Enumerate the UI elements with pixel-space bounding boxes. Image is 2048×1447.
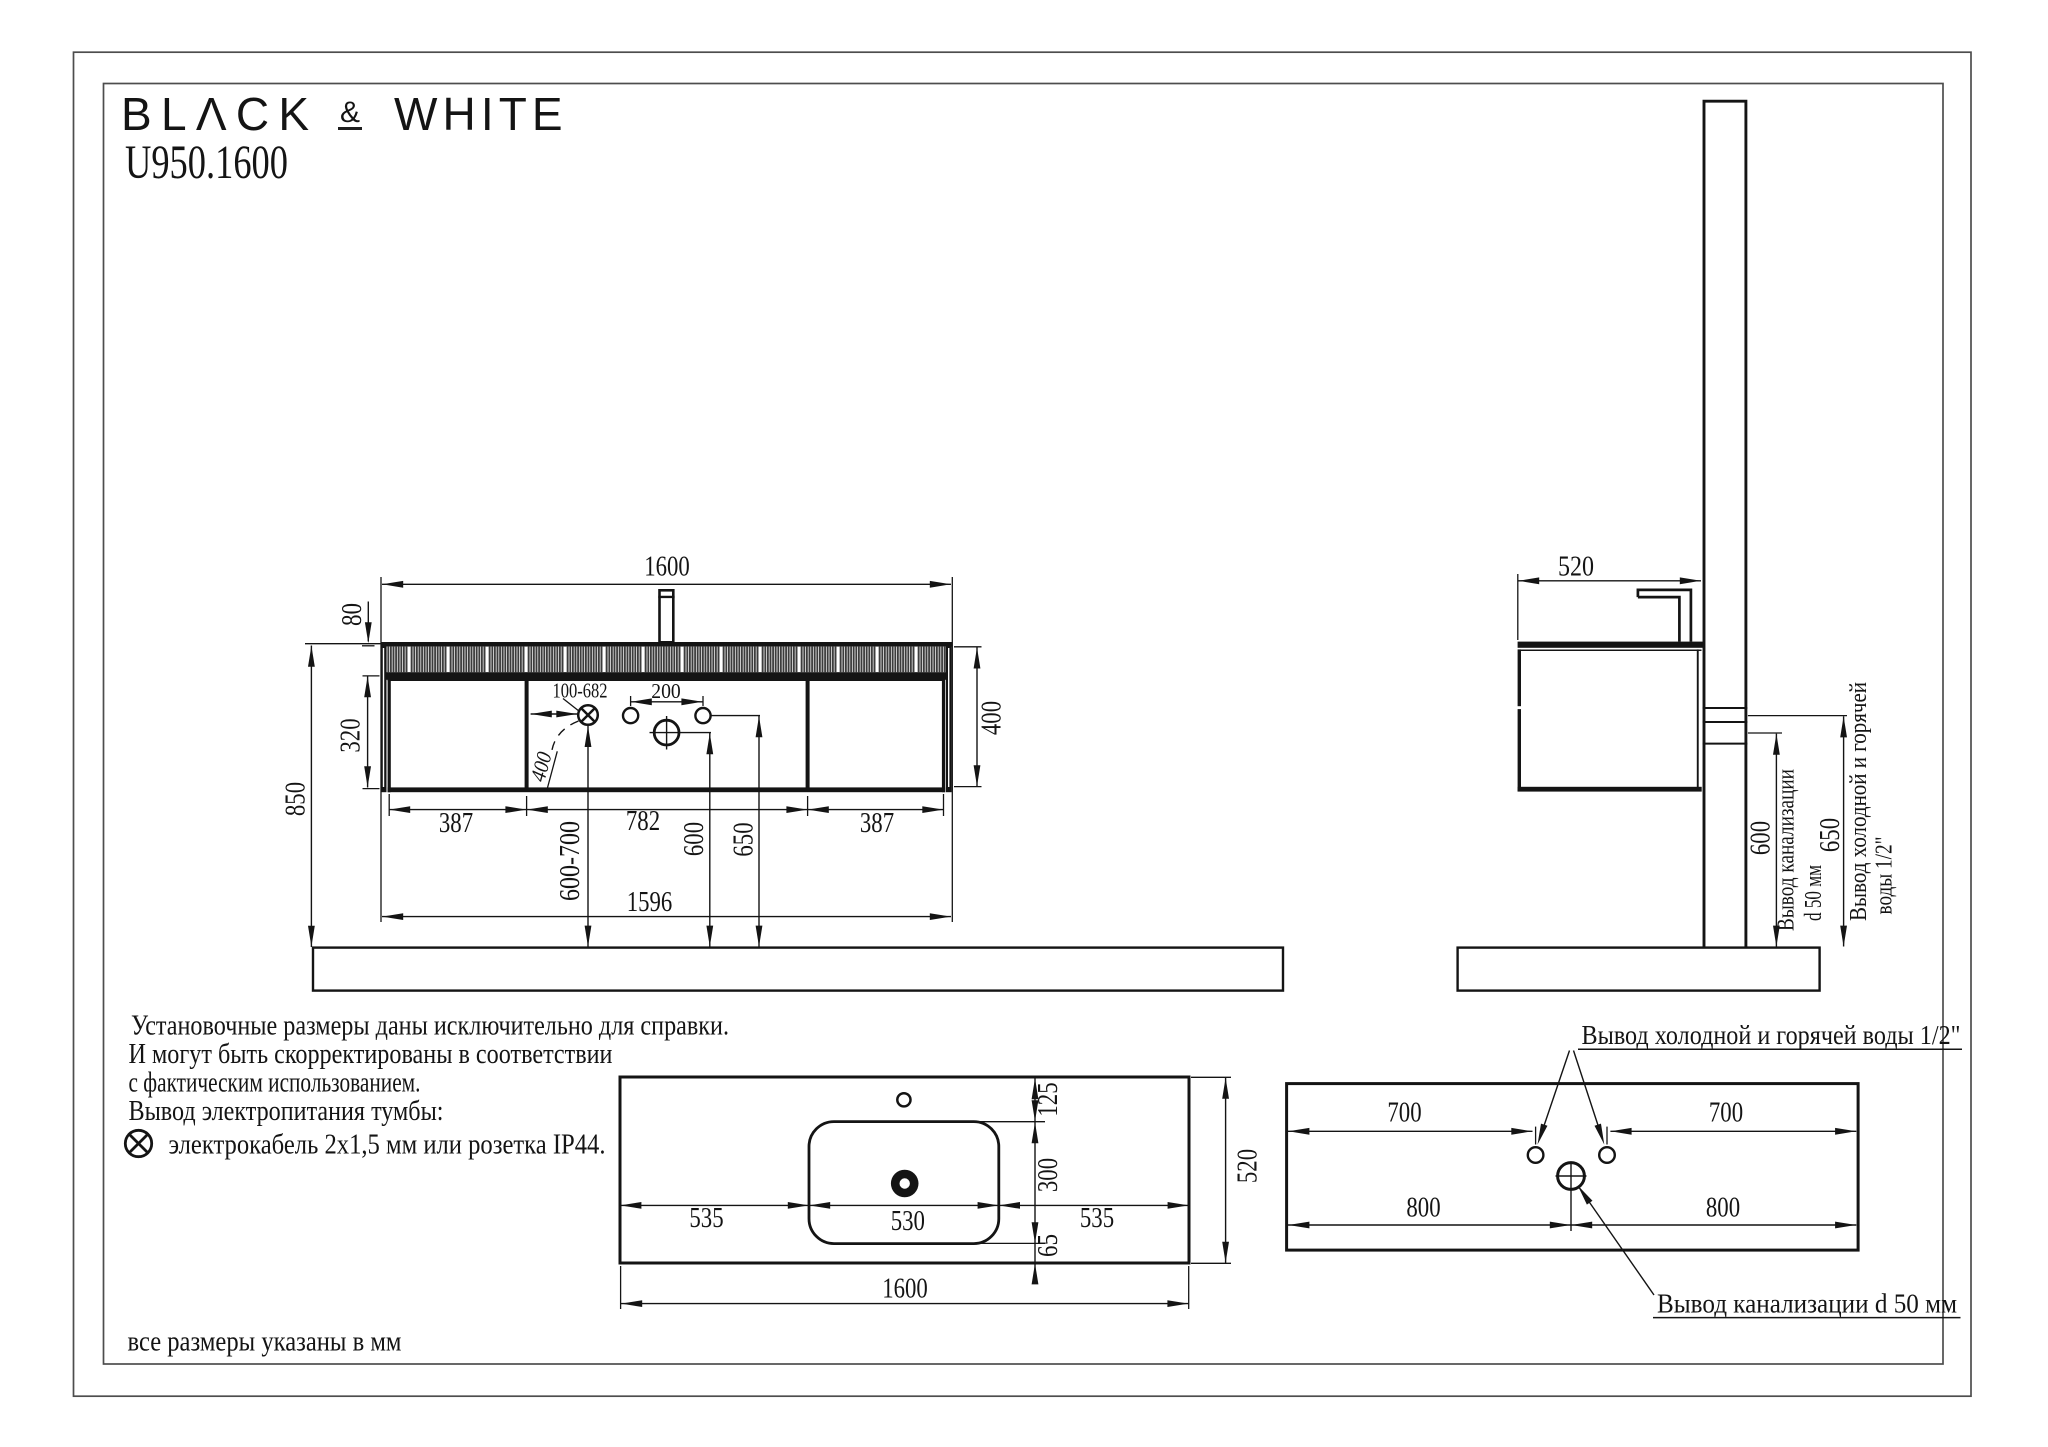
svg-text:65: 65: [1032, 1234, 1064, 1257]
svg-text:535: 535: [689, 1202, 723, 1234]
svg-text:700: 700: [1709, 1097, 1743, 1129]
svg-text:И могут быть скорректированы в: И могут быть скорректированы в соответст…: [129, 1038, 613, 1070]
svg-text:Установочные размеры даны искл: Установочные размеры даны исключительно …: [131, 1010, 729, 1042]
svg-text:600: 600: [1744, 821, 1776, 855]
svg-text:Вывод канализации d 50 мм: Вывод канализации d 50 мм: [1657, 1289, 1957, 1319]
svg-text:1600: 1600: [644, 551, 690, 583]
svg-text:BLΛCK: BLΛCK: [121, 88, 318, 140]
svg-text:1596: 1596: [627, 886, 673, 918]
svg-text:100-682: 100-682: [553, 679, 608, 703]
svg-text:800: 800: [1706, 1192, 1740, 1224]
svg-text:все размеры указаны в мм: все размеры указаны в мм: [128, 1326, 402, 1358]
svg-text:U950.1600: U950.1600: [125, 136, 288, 189]
svg-text:125: 125: [1032, 1082, 1064, 1116]
svg-text:с фактическим использованием.: с фактическим использованием.: [129, 1067, 421, 1099]
svg-text:WHITE: WHITE: [394, 88, 568, 140]
svg-text:320: 320: [335, 718, 367, 752]
svg-text:Вывод холодной и горячей: Вывод холодной и горячей: [1846, 682, 1872, 921]
svg-text:&: &: [340, 96, 360, 129]
svg-text:387: 387: [439, 807, 473, 839]
svg-text:387: 387: [860, 807, 894, 839]
svg-text:электрокабель 2х1,5 мм или роз: электрокабель 2х1,5 мм или розетка IP44.: [169, 1129, 606, 1161]
svg-text:700: 700: [1387, 1097, 1421, 1129]
svg-text:80: 80: [336, 603, 368, 626]
svg-text:650: 650: [728, 822, 760, 856]
svg-text:200: 200: [651, 679, 681, 703]
svg-text:782: 782: [626, 805, 660, 837]
svg-text:300: 300: [1032, 1158, 1064, 1192]
svg-text:520: 520: [1232, 1149, 1264, 1183]
svg-text:650: 650: [1814, 818, 1846, 852]
svg-text:Вывод канализации: Вывод канализации: [1774, 769, 1800, 931]
svg-text:600-700: 600-700: [554, 821, 586, 901]
svg-text:800: 800: [1406, 1192, 1440, 1224]
svg-text:520: 520: [1558, 550, 1594, 582]
svg-text:600: 600: [678, 822, 710, 856]
svg-text:535: 535: [1080, 1202, 1114, 1234]
svg-text:Вывод холодной и горячей воды: Вывод холодной и горячей воды 1/2": [1582, 1020, 1961, 1050]
svg-text:d 50 мм: d 50 мм: [1801, 865, 1827, 921]
svg-text:1600: 1600: [882, 1273, 928, 1305]
svg-text:Вывод электропитания тумбы:: Вывод электропитания тумбы:: [129, 1095, 444, 1127]
svg-text:530: 530: [891, 1205, 925, 1237]
svg-text:воды 1/2": воды 1/2": [1872, 837, 1898, 915]
svg-text:850: 850: [280, 782, 312, 816]
svg-text:400: 400: [975, 701, 1007, 735]
